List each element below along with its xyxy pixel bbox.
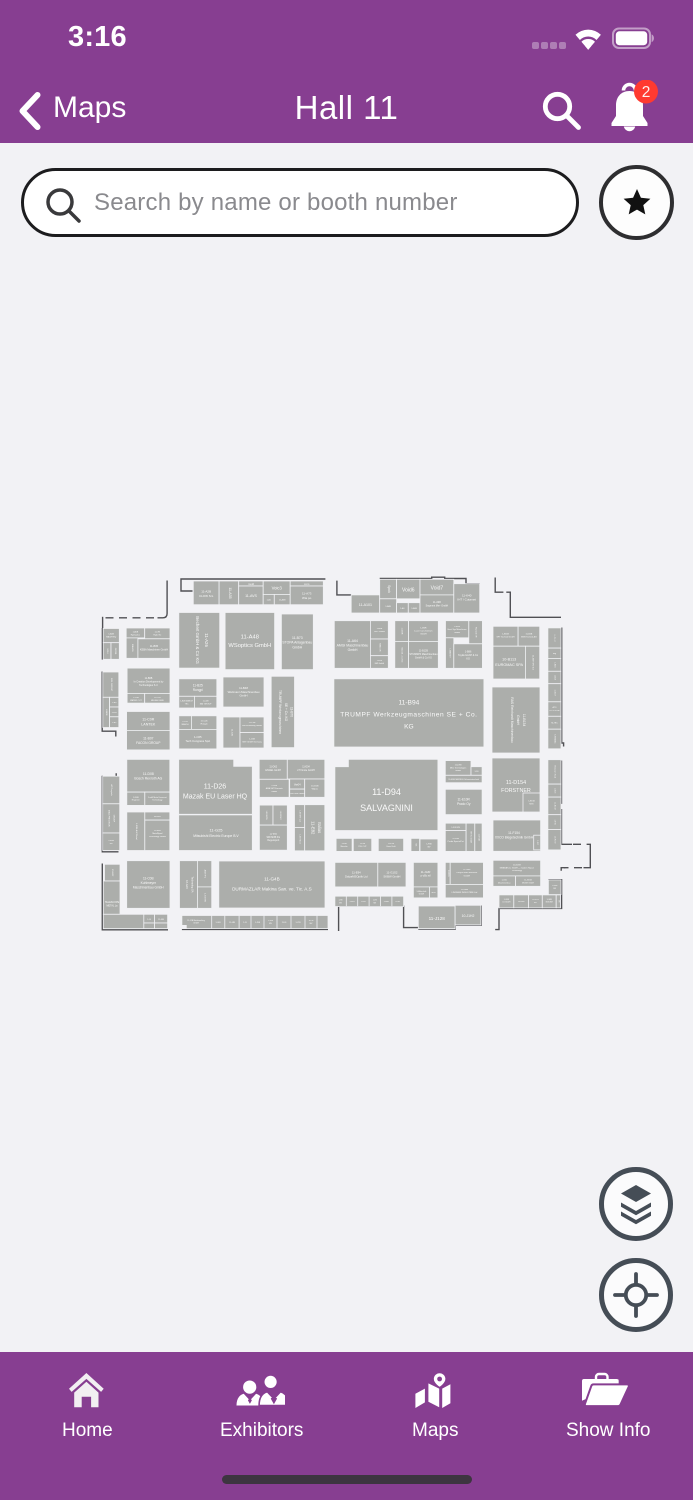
svg-text:11-C0R: 11-C0R (142, 718, 155, 722)
svg-text:11-D26: 11-D26 (204, 784, 227, 791)
svg-text:GmbH: GmbH (348, 648, 358, 652)
svg-text:1-G15: 1-G15 (502, 880, 507, 882)
svg-text:SMI MVB KG: SMI MVB KG (266, 837, 280, 839)
svg-text:TEC: TEC (185, 703, 189, 705)
svg-text:1-J0: 1-J0 (147, 919, 151, 921)
svg-text:MDL Technologies: MDL Technologies (450, 767, 466, 769)
svg-text:11-C0B: 11-C0B (143, 877, 154, 881)
svg-text:ATO: ATO (553, 706, 557, 709)
svg-text:1-J6B: 1-J6B (268, 920, 274, 922)
svg-text:DURMAZLAR Makina San. ve.: DURMAZLAR Makina San. ve. Tic. A.S (232, 887, 312, 892)
svg-text:ACM P.L: ACM P.L (204, 870, 207, 879)
svg-text:11-D94: 11-D94 (372, 787, 401, 797)
svg-text:Void7: Void7 (431, 586, 444, 592)
svg-text:GmbH: GmbH (464, 875, 471, 877)
svg-text:11-G06: 11-G06 (463, 869, 471, 871)
svg-text:11-J2B Metalworking: 11-J2B Metalworking (187, 919, 205, 922)
svg-text:1-H1B: 1-H1B (349, 901, 355, 903)
svg-text:Voic3: Voic3 (272, 586, 283, 591)
svg-text:PGL CUT: PGL CUT (358, 846, 367, 848)
svg-text:TELESCOPE: TELESCOPE (105, 901, 120, 904)
svg-text:KG: KG (466, 658, 470, 661)
svg-text:1-A0B: 1-A0B (133, 631, 139, 634)
svg-text:RAS Reinhardt Maschinenbau: RAS Reinhardt Maschinenbau (510, 697, 514, 743)
svg-text:KMT GmbH Germany: KMT GmbH Germany (242, 742, 261, 744)
svg-text:MBN GR: MBN GR (378, 643, 380, 652)
svg-text:KG: KG (404, 724, 414, 731)
svg-text:MASCH: MASCH (131, 644, 134, 652)
svg-text:ENGEL GmbH: ENGEL GmbH (265, 769, 281, 772)
svg-text:Hanz Kraft: Hanz Kraft (387, 845, 396, 848)
svg-text:11-A73: 11-A73 (302, 592, 312, 596)
svg-text:11-B70: 11-B70 (290, 707, 294, 717)
svg-text:1-17B: 1-17B (155, 632, 161, 634)
svg-text:LK GmbH: LK GmbH (502, 901, 511, 903)
svg-text:Bosch Rexroth AG: Bosch Rexroth AG (134, 777, 162, 781)
svg-text:11-J4B: 11-J4B (229, 922, 236, 924)
svg-text:Maschin: Maschin (341, 846, 348, 848)
svg-text:Laser Cut Zentrum: Laser Cut Zentrum (414, 630, 432, 633)
svg-text:1-B7B: 1-B7B (377, 660, 383, 662)
svg-text:1-B2B MASCH: 1-B2B MASCH (180, 700, 193, 703)
svg-text:ROTOTEM: ROTOTEM (550, 710, 560, 712)
svg-text:Tech Congress SpA: Tech Congress SpA (185, 739, 210, 743)
svg-text:MetalSped: MetalSped (152, 832, 163, 835)
svg-text:Technolog SA: Technolog SA (191, 876, 195, 892)
svg-text:GmbH & Co KG: GmbH & Co KG (415, 657, 432, 660)
svg-text:METAL La: METAL La (106, 905, 118, 908)
svg-text:Segment Me+ GmbH: Segment Me+ GmbH (426, 605, 449, 608)
svg-text:11-B25: 11-B25 (193, 684, 203, 688)
svg-text:1-F3B: 1-F3B (426, 844, 432, 846)
svg-text:CLOW SrL: CLOW SrL (199, 594, 214, 598)
svg-text:MASCH: MASCH (182, 723, 189, 726)
svg-text:1-J4B: 1-J4B (216, 922, 222, 924)
svg-text:SKBW GmbH: SKBW GmbH (383, 875, 400, 879)
svg-text:Prado Oy: Prado Oy (457, 802, 471, 806)
svg-text:IHT / Cutamet: IHT / Cutamet (457, 598, 476, 602)
svg-text:SALVAGNINI: SALVAGNINI (360, 803, 413, 813)
svg-text:1-E0B: 1-E0B (108, 840, 114, 842)
svg-text:mfg: mfg (553, 653, 556, 655)
svg-text:11-H5: 11-H5 (395, 901, 400, 903)
svg-text:SE + Co. KG: SE + Co. KG (284, 703, 288, 722)
svg-text:com: com (304, 582, 310, 586)
svg-text:11-B1: 11-B1 (112, 712, 118, 714)
svg-text:11-E132: 11-E132 (554, 802, 556, 810)
svg-text:1-A8B: 1-A8B (385, 605, 391, 608)
svg-text:1-D6B: 1-D6B (271, 785, 277, 787)
svg-text:11-F11B: 11-F11B (478, 834, 480, 842)
svg-text:GROUP: GROUP (113, 815, 115, 823)
svg-text:Engineer: Engineer (132, 800, 140, 802)
svg-text:Technologies S.r.l: Technologies S.r.l (139, 684, 158, 687)
svg-text:GROB: GROB (114, 648, 116, 655)
svg-text:LINDNER INDUSTRIE Ltd: LINDNER INDUSTRIE Ltd (452, 891, 478, 894)
svg-text:1-B15: 1-B15 (554, 662, 556, 668)
svg-text:MACHTEQ: MACHTEQ (106, 636, 116, 639)
svg-text:1-F0R MV: 1-F0R MV (451, 827, 460, 829)
svg-text:TRUMPF Werkzeugmaschinen: TRUMPF Werkzeugmaschinen (278, 690, 282, 734)
svg-text:GmbH: GmbH (271, 791, 277, 793)
svg-text:11-C1B: 11-C1B (154, 697, 161, 699)
svg-text:Hydr. Ne: Hydr. Ne (153, 635, 162, 637)
svg-text:LINDE: LINDE (105, 709, 107, 716)
svg-text:Wilpro: Wilpro (312, 788, 319, 791)
svg-text:EUROMAC SPA: EUROMAC SPA (495, 663, 523, 667)
svg-text:1-B11B: 1-B11B (502, 634, 509, 636)
svg-text:10-F172: 10-F172 (554, 836, 556, 844)
svg-text:11-B2B: 11-B2B (526, 634, 533, 636)
svg-text:p-cBc stl: p-cBc stl (421, 874, 431, 878)
svg-text:SINARATunc GmbH — modern Repai: SINARATunc GmbH — modern Repair (500, 866, 535, 869)
svg-text:LANTEK: LANTEK (141, 723, 156, 727)
svg-text:TRUMPF Werkzeugmaschinen SE +: TRUMPF Werkzeugmaschinen SE + Co. (340, 712, 477, 719)
svg-text:SCHI: SCHI (106, 648, 108, 654)
svg-text:1-xxB Metal Lasercut: 1-xxB Metal Lasercut (148, 796, 167, 799)
svg-text:1-B6B: 1-B6B (377, 628, 383, 630)
svg-text:1-E6 MTN: 1-E6 MTN (265, 811, 267, 821)
svg-text:1-C2R: 1-C2R (182, 721, 188, 723)
svg-text:11-E65: 11-E65 (270, 834, 278, 836)
svg-text:Maschinenbau: Maschinenbau (498, 882, 510, 884)
svg-text:MELANI GMB: MELANI GMB (151, 699, 164, 702)
svg-text:1-J7B: 1-J7B (296, 922, 302, 924)
svg-text:11-A2B: 11-A2B (201, 590, 211, 594)
svg-text:GmbH: GmbH (193, 923, 199, 925)
svg-text:1-G6B: 1-G6B (552, 885, 558, 887)
svg-text:1-H0: 1-H0 (339, 900, 343, 902)
svg-text:Hydraulics: Hydraulics (131, 635, 140, 637)
svg-text:SAT GROUP: SAT GROUP (200, 702, 212, 705)
svg-text:MODE GmbH: MODE GmbH (522, 882, 534, 884)
svg-text:Runtech IR: Runtech IR (475, 627, 478, 638)
svg-text:1-E62 MV: 1-E62 MV (279, 811, 281, 821)
svg-text:11-B07: 11-B07 (143, 737, 154, 741)
svg-text:Hect Sys Maschinen: Hect Sys Maschinen (448, 628, 468, 631)
svg-text:WSoptics GmbH: WSoptics GmbH (228, 643, 271, 649)
svg-text:MFL GROUP: MFL GROUP (110, 678, 112, 691)
svg-text:1-E13: 1-E13 (554, 788, 556, 794)
svg-text:1-F0B: 1-F0B (342, 843, 348, 845)
svg-text:1-D0B: 1-D0B (133, 797, 139, 799)
svg-text:MALL PRECISION: MALL PRECISION (108, 810, 111, 827)
svg-text:11-B134: 11-B134 (522, 714, 526, 727)
svg-text:10-J8: 10-J8 (309, 920, 314, 922)
svg-text:DEC GMBH: DEC GMBH (374, 631, 385, 633)
svg-text:11-D08: 11-D08 (143, 772, 154, 776)
svg-text:2 Trimote GmbH: 2 Trimote GmbH (297, 769, 315, 772)
svg-text:1-E15B: 1-E15B (528, 801, 535, 803)
svg-text:KEBA Maschinen GmbH: KEBA Maschinen GmbH (140, 648, 168, 652)
svg-text:GmbH: GmbH (455, 770, 461, 772)
svg-text:1-B6R: 1-B6R (420, 628, 427, 630)
svg-text:11-A6B: 11-A6B (279, 599, 286, 602)
svg-text:1-A9B: 1-A9B (411, 607, 417, 610)
svg-text:DalyaMSOptik Ltd: DalyaMSOptik Ltd (345, 875, 368, 879)
svg-text:11-C2b: 11-C2b (201, 721, 209, 723)
svg-text:11-G7B: 11-G7B (532, 899, 539, 901)
svg-text:1-B2B: 1-B2B (454, 626, 460, 628)
svg-text:Technology: Technology (152, 800, 162, 802)
svg-text:11-F154: 11-F154 (508, 831, 520, 835)
svg-text:M-TEC: M-TEC (551, 722, 558, 724)
svg-text:MODEM: MODEM (546, 901, 553, 903)
svg-text:MVD: MVD (529, 803, 534, 805)
svg-text:DanySl Man Machine: DanySl Man Machine (456, 872, 478, 874)
svg-text:11-J0B: 11-J0B (158, 919, 165, 921)
svg-text:11-B94: 11-B94 (399, 700, 420, 707)
svg-text:Bechert GmbH & Co KG: Bechert GmbH & Co KG (195, 616, 200, 664)
svg-text:11-D154: 11-D154 (506, 780, 526, 786)
svg-text:11-G15B: 11-G15B (524, 880, 532, 882)
svg-text:Schmitt + Co KG: Schmitt + Co KG (401, 647, 404, 662)
svg-text:GmbH: GmbH (292, 645, 302, 649)
svg-text:GmbH: GmbH (239, 694, 247, 698)
svg-text:AC Funyiolo: AC Funyiolo (110, 784, 113, 796)
svg-text:xx-G4B: xx-G4B (154, 816, 161, 818)
svg-text:10-G6B: 10-G6B (518, 901, 525, 903)
svg-text:Italias: Italias (317, 822, 322, 833)
svg-text:1-E8 MV Cut: 1-E8 MV Cut (299, 810, 302, 822)
svg-text:1-E9 Steel: 1-E9 Steel (299, 834, 302, 844)
svg-text:SFT Technik GmbH: SFT Technik GmbH (496, 637, 515, 639)
svg-text:SY-B02: SY-B02 (111, 869, 113, 877)
svg-text:10-J1H2: 10-J1H2 (462, 914, 475, 918)
svg-text:1-C0B: 1-C0B (133, 697, 139, 699)
svg-text:11-E9B MERKLE Schweisstechnik: 11-E9B MERKLE Schweisstechnik (448, 778, 479, 781)
svg-text:11-G4B: 11-G4B (264, 877, 280, 882)
svg-text:1-Mittechnik: 1-Mittechnik (417, 890, 427, 893)
svg-text:1-E0B A-M Metal: 1-E0B A-M Metal (135, 823, 138, 840)
svg-text:11-G05R: 11-G05R (513, 865, 522, 867)
svg-text:11-J128: 11-J128 (429, 916, 446, 921)
svg-text:MVB Technik AG: MVB Technik AG (521, 636, 537, 639)
svg-text:Var04: Var04 (294, 783, 301, 787)
svg-text:11-J12R: 11-J12R (421, 870, 431, 874)
svg-text:WATER CUT: WATER CUT (130, 699, 142, 702)
svg-text:GmbH: GmbH (516, 715, 520, 725)
svg-text:AMGI Maschinenbau: AMGI Maschinenbau (337, 644, 369, 648)
svg-text:1-H3: 1-H3 (373, 900, 377, 902)
svg-text:10-B113: 10-B113 (502, 658, 516, 662)
svg-text:11-A48: 11-A48 (241, 635, 259, 641)
svg-text:11-B6R: 11-B6R (401, 628, 403, 635)
svg-text:LISSMAC: LISSMAC (554, 735, 557, 744)
svg-text:1-B8B MV: 1-B8B MV (449, 648, 451, 658)
svg-text:1-C6B: 1-C6B (249, 739, 255, 741)
svg-text:11-H2: 11-H2 (361, 901, 366, 903)
svg-text:Mazak EU Laser HQ: Mazak EU Laser HQ (183, 794, 248, 801)
svg-text:11-A101: 11-A101 (359, 603, 372, 607)
svg-text:Mitsubishi Electric Europe: Mitsubishi Electric Europe B.V (193, 834, 239, 838)
svg-text:GmbH: GmbH (454, 632, 461, 634)
svg-text:Technology: Technology (512, 870, 522, 872)
svg-text:1-F15: 1-F15 (554, 819, 556, 825)
svg-text:1-G2 MO: 1-G2 MO (204, 893, 206, 902)
svg-text:Rongin: Rongin (201, 724, 209, 726)
svg-text:11-E4B: 11-E4B (154, 830, 161, 832)
svg-text:Maschinenbau GmbH: Maschinenbau GmbH (133, 886, 165, 890)
svg-text:11-B8T MV Sol: 11-B8T MV Sol (532, 655, 534, 670)
svg-text:11-D9B: 11-D9B (455, 765, 462, 767)
svg-text:11-B132: 11-B132 (554, 634, 556, 642)
svg-text:FACON GROUP: FACON GROUP (136, 741, 161, 745)
svg-text:11-E10R: 11-E10R (458, 798, 471, 802)
svg-text:11-B05: 11-B05 (150, 644, 159, 648)
svg-text:1-H4B: 1-H4B (384, 901, 390, 903)
svg-text:11-A35: 11-A35 (228, 587, 232, 598)
svg-text:AMA SMT Formats: AMA SMT Formats (266, 787, 283, 790)
svg-text:GmbH: GmbH (419, 893, 425, 895)
svg-text:Regensport: Regensport (267, 839, 279, 842)
svg-text:11-AVS: 11-AVS (245, 594, 257, 598)
svg-text:Wia po: Wia po (302, 596, 312, 600)
svg-text:1-A0B: 1-A0B (108, 633, 114, 636)
svg-text:Kuhlmeyer: Kuhlmeyer (141, 881, 157, 885)
svg-text:11-E82: 11-E82 (311, 821, 316, 835)
svg-text:1-C2B: 1-C2B (203, 701, 209, 703)
svg-text:1-F17: 1-F17 (536, 840, 538, 845)
svg-text:11-G0B: 11-G0B (461, 889, 469, 891)
svg-text:Rongpi: Rongpi (193, 688, 203, 692)
svg-text:Spok: Spok (387, 585, 391, 593)
svg-text:10-D0B: 10-D0B (311, 786, 319, 788)
svg-text:10-G15: 10-G15 (185, 880, 189, 889)
svg-text:1-J5B: 1-J5B (255, 922, 261, 924)
svg-text:Technology GmbH: Technology GmbH (149, 836, 167, 838)
svg-text:11-B17: 11-B17 (554, 690, 556, 697)
svg-text:11-A26: 11-A26 (204, 633, 209, 647)
svg-text:11-G25: 11-G25 (209, 828, 223, 833)
svg-text:1-G0 MV: 1-G0 MV (447, 870, 449, 878)
svg-text:11-B73: 11-B73 (292, 636, 303, 640)
svg-text:MSTC GmbH: MSTC GmbH (470, 832, 472, 844)
svg-text:11-F2B: 11-F2B (388, 843, 395, 845)
svg-text:Museum Tech: Museum Tech (554, 766, 556, 778)
svg-text:11-C45: 11-C45 (231, 729, 233, 737)
svg-text:mold: mold (248, 582, 255, 586)
svg-text:1-E0 MDE GmbH: 1-E0 MDE GmbH (290, 793, 305, 795)
svg-text:Prado SpecialCut: Prado SpecialCut (448, 840, 465, 843)
svg-text:1-F1B: 1-F1B (360, 843, 366, 845)
svg-text:1-B16: 1-B16 (554, 675, 556, 681)
svg-text:XXCO Biegetechnik GmbH: XXCO Biegetechnik GmbH (495, 836, 534, 840)
svg-text:11-C4B: 11-C4B (249, 722, 256, 724)
svg-text:11-F0B: 11-F0B (452, 838, 459, 840)
svg-text:Mid Schneidog GmbH: Mid Schneidog GmbH (242, 725, 262, 727)
svg-text:11-A64: 11-A64 (347, 639, 358, 643)
svg-text:11-J6: 11-J6 (282, 922, 287, 924)
svg-text:Void6: Void6 (402, 588, 415, 594)
svg-text:STOPA Anlagenbau: STOPA Anlagenbau (282, 641, 312, 645)
svg-text:GmbH: GmbH (420, 634, 427, 636)
svg-text:MW GmbH: MW GmbH (375, 663, 385, 665)
svg-text:1-J5: 1-J5 (243, 922, 247, 924)
svg-text:1-D9: 1-D9 (474, 771, 478, 773)
